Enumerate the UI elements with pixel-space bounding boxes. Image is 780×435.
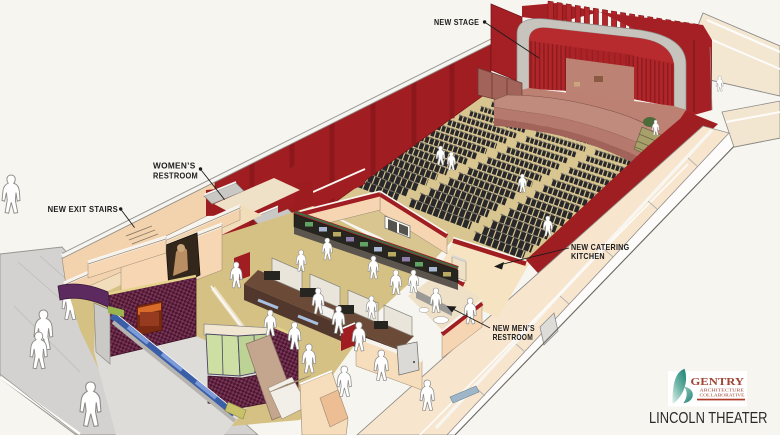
svg-text:NEW EXIT STAIRS: NEW EXIT STAIRS [48,204,119,214]
svg-text:RESTROOM: RESTROOM [153,171,198,181]
svg-text:NEW STAGE: NEW STAGE [434,17,479,27]
svg-text:LINCOLN THEATER: LINCOLN THEATER [649,410,768,427]
svg-text:KITCHEN: KITCHEN [571,251,605,261]
svg-text:RESTROOM: RESTROOM [493,332,533,342]
svg-text:WOMEN’S: WOMEN’S [153,161,196,171]
svg-text:GENTRY: GENTRY [691,376,745,388]
svg-text:COLLABORATIVE: COLLABORATIVE [700,393,745,398]
